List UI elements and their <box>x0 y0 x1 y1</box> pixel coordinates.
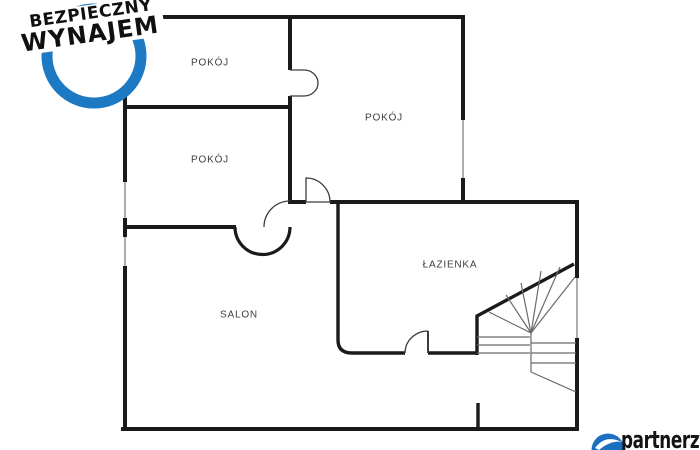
stair-winder <box>531 271 541 333</box>
door-leaf-corridor <box>306 178 330 202</box>
door-leaf-big-room <box>290 70 318 96</box>
room-label-pokoj-left: POKÓJ <box>191 155 229 166</box>
room-label-lazienka: ŁAZIENKA <box>423 260 478 271</box>
room-label-salon: SALON <box>220 310 258 321</box>
floor-plan-page: POKÓJ POKÓJ POKÓJ ŁAZIENKA SALON BEZPIEC… <box>0 0 700 450</box>
stair-tread-diagonal <box>531 372 576 392</box>
wall-bathroom-left <box>338 204 405 353</box>
bezpieczny-wynajem-badge: BEZPIECZNY WYNAJEM <box>0 0 200 130</box>
partnerzy-logo-text: partnerzy <box>621 426 700 450</box>
stairs-group <box>477 267 576 392</box>
door-swing-salon <box>264 201 290 227</box>
door-swing-bathroom <box>405 331 428 353</box>
room-label-pokoj-right: POKÓJ <box>365 113 403 124</box>
stair-winder <box>531 267 560 333</box>
arch-salon-opening <box>235 227 290 255</box>
wall-stairs-diagonal <box>477 264 574 355</box>
